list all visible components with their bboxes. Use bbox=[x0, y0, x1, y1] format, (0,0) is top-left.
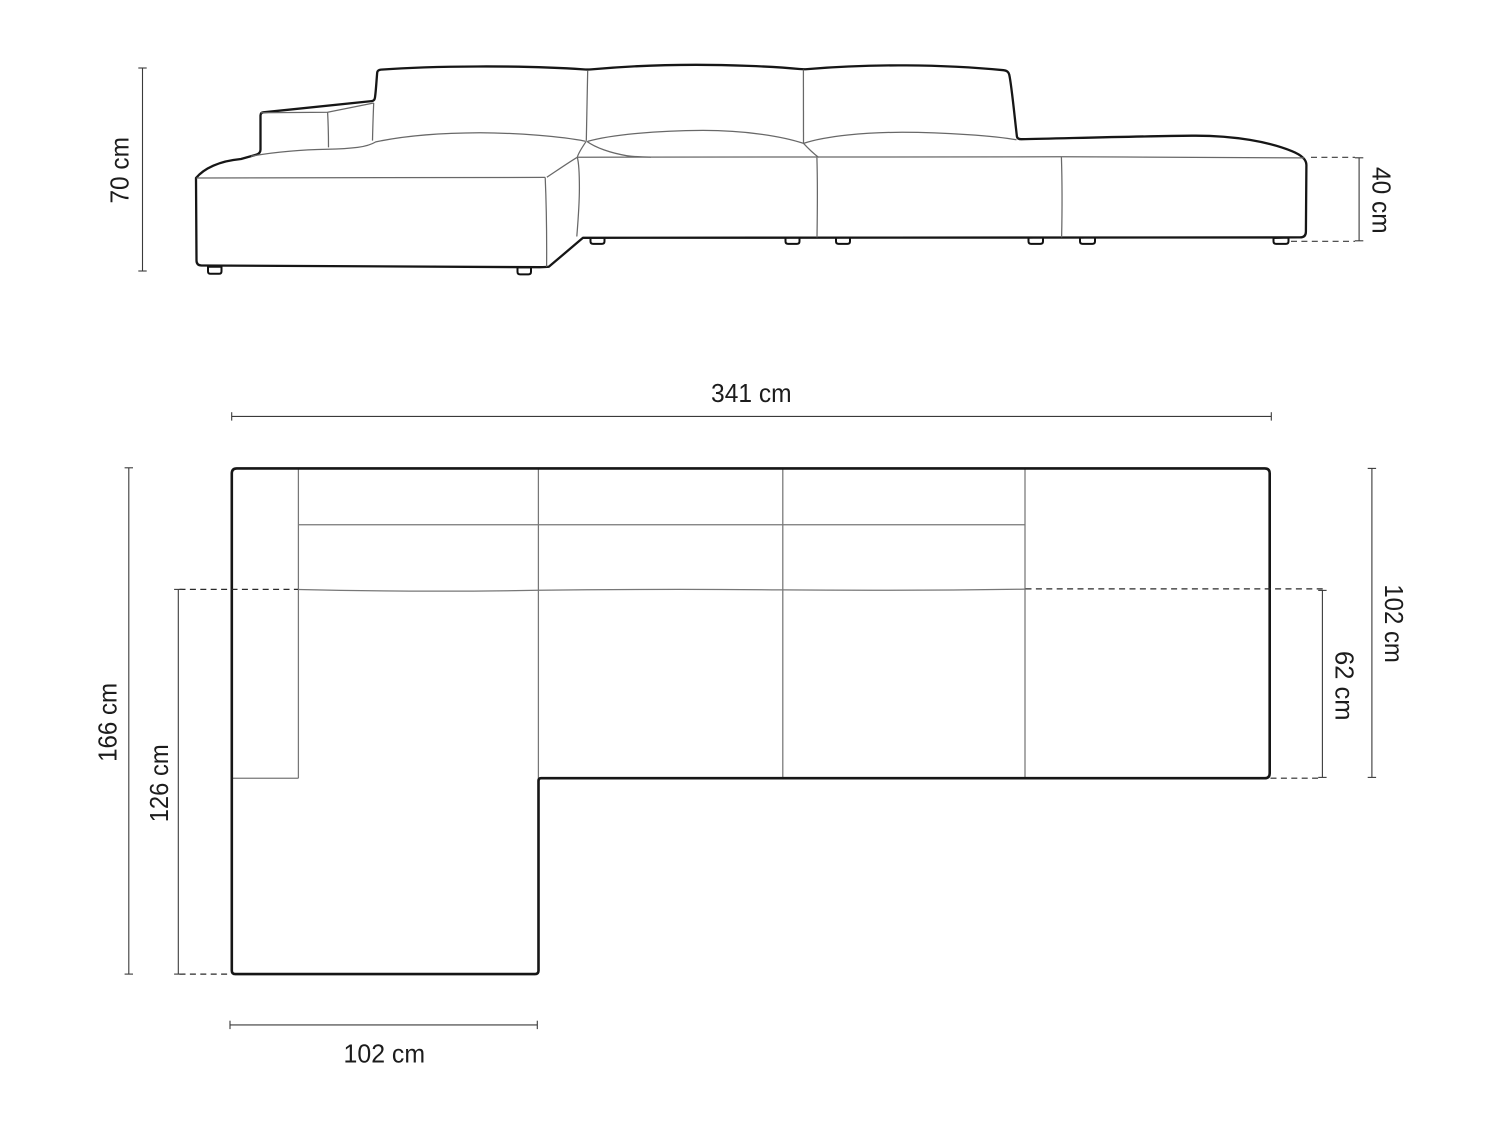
svg-text:341 cm: 341 cm bbox=[711, 378, 792, 408]
svg-text:40 cm: 40 cm bbox=[1366, 167, 1396, 234]
svg-text:102 cm: 102 cm bbox=[1379, 584, 1409, 663]
svg-text:62 cm: 62 cm bbox=[1329, 651, 1359, 721]
svg-text:70 cm: 70 cm bbox=[105, 137, 135, 204]
svg-text:166 cm: 166 cm bbox=[93, 683, 123, 762]
svg-text:126 cm: 126 cm bbox=[144, 744, 174, 822]
svg-text:102 cm: 102 cm bbox=[344, 1039, 426, 1069]
